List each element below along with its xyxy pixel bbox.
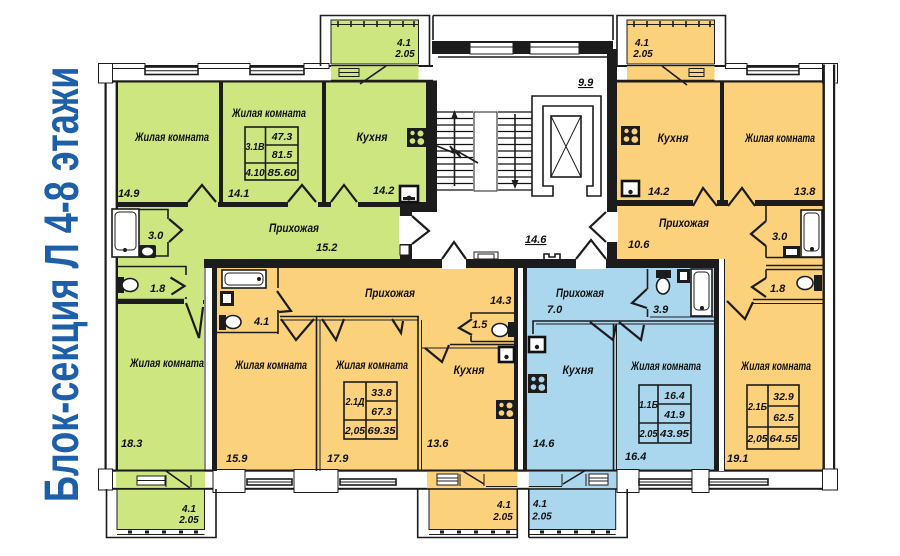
svg-text:67.3: 67.3: [371, 406, 392, 418]
svg-text:2,05: 2,05: [747, 433, 768, 445]
svg-text:2.05: 2.05: [178, 515, 199, 526]
svg-text:43.95: 43.95: [659, 428, 689, 440]
svg-text:64.55: 64.55: [770, 433, 798, 445]
svg-text:4.1: 4.1: [532, 499, 547, 510]
svg-text:14.2: 14.2: [373, 185, 394, 197]
svg-text:33.8: 33.8: [371, 387, 392, 399]
svg-text:Жилая комната: Жилая комната: [134, 132, 209, 144]
svg-text:81.5: 81.5: [272, 149, 293, 161]
svg-text:1.8: 1.8: [150, 283, 166, 295]
svg-text:14.9: 14.9: [118, 188, 140, 200]
svg-text:4.1: 4.1: [496, 500, 511, 511]
svg-text:14.2: 14.2: [648, 186, 669, 198]
svg-text:2.05: 2.05: [394, 49, 415, 60]
svg-text:13.6: 13.6: [427, 438, 449, 450]
svg-text:Прихожая: Прихожая: [659, 218, 709, 230]
svg-text:14.6: 14.6: [525, 234, 547, 246]
svg-text:2.05: 2.05: [632, 49, 653, 60]
svg-text:Жилая комната: Жилая комната: [630, 361, 701, 373]
svg-text:Жилая комната: Жилая комната: [231, 108, 306, 120]
svg-text:2.05: 2.05: [639, 428, 658, 440]
svg-text:16.4: 16.4: [625, 451, 646, 463]
svg-text:69.35: 69.35: [368, 425, 396, 437]
svg-text:2.05: 2.05: [492, 512, 513, 523]
svg-text:Кухня: Кухня: [357, 132, 388, 144]
svg-text:10.6: 10.6: [628, 239, 650, 251]
svg-text:3.1В: 3.1В: [246, 141, 265, 153]
svg-text:3.9: 3.9: [653, 304, 669, 316]
svg-text:7.0: 7.0: [547, 304, 563, 316]
svg-text:13.8: 13.8: [794, 186, 816, 198]
svg-text:3.0: 3.0: [772, 231, 788, 243]
svg-text:4.1: 4.1: [253, 316, 269, 328]
svg-text:Прихожая: Прихожая: [365, 288, 415, 300]
svg-text:2.05: 2.05: [531, 512, 552, 523]
svg-text:4.1: 4.1: [634, 38, 649, 49]
svg-text:4.1: 4.1: [396, 38, 411, 49]
svg-text:Кухня: Кухня: [658, 133, 689, 145]
svg-text:16.4: 16.4: [664, 390, 685, 402]
svg-text:Жилая комната: Жилая комната: [744, 133, 815, 145]
svg-text:Жилая комната: Жилая комната: [740, 361, 811, 373]
svg-text:85.60: 85.60: [268, 167, 297, 179]
svg-text:15.9: 15.9: [226, 453, 248, 465]
svg-text:Жилая комната: Жилая комната: [129, 358, 204, 370]
svg-text:2.1Б: 2.1Б: [747, 401, 767, 413]
svg-text:47.3: 47.3: [271, 131, 293, 143]
svg-text:Прихожая: Прихожая: [269, 223, 319, 235]
svg-text:14.3: 14.3: [490, 295, 511, 307]
svg-text:41.9: 41.9: [663, 409, 685, 421]
svg-text:4.10: 4.10: [245, 167, 265, 179]
svg-text:62.5: 62.5: [773, 412, 794, 424]
svg-text:3.0: 3.0: [148, 230, 164, 242]
svg-text:17.9: 17.9: [327, 453, 349, 465]
svg-text:2.1Д: 2.1Д: [345, 396, 365, 408]
svg-text:14.1: 14.1: [228, 188, 249, 200]
svg-text:Кухня: Кухня: [454, 365, 485, 377]
svg-text:Блок-секция Л 4-8 этажи: Блок-секция Л 4-8 этажи: [35, 67, 88, 502]
svg-text:Кухня: Кухня: [563, 365, 594, 377]
svg-text:19.1: 19.1: [727, 453, 748, 465]
svg-text:14.6: 14.6: [533, 438, 555, 450]
svg-text:1.5: 1.5: [472, 319, 488, 331]
svg-text:9.9: 9.9: [578, 77, 594, 89]
svg-text:Жилая комната: Жилая комната: [335, 360, 408, 372]
svg-text:Прихожая: Прихожая: [556, 288, 604, 300]
svg-text:32.9: 32.9: [773, 391, 794, 403]
svg-text:18.3: 18.3: [121, 438, 142, 450]
svg-text:2,05: 2,05: [344, 425, 365, 437]
svg-text:1.1Б: 1.1Б: [639, 399, 658, 411]
svg-text:1.8: 1.8: [770, 283, 786, 295]
svg-text:Жилая комната: Жилая комната: [234, 360, 307, 372]
svg-text:15.2: 15.2: [316, 242, 337, 254]
svg-text:4.1: 4.1: [181, 504, 196, 515]
